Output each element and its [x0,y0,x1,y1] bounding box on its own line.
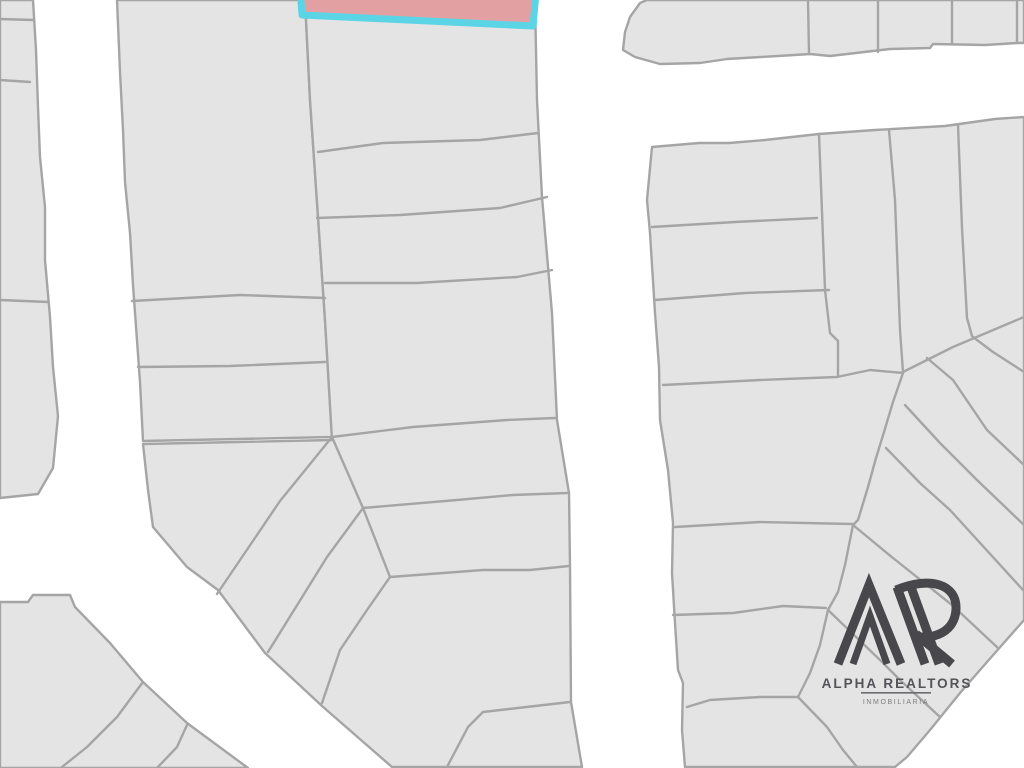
parcel-blocks [0,0,1024,768]
logo-title: ALPHA REALTORS [822,676,973,691]
block-top-right [623,0,1024,64]
block-right-superblock [647,117,1024,767]
map-viewport: ALPHA REALTORS INMOBILIARIA [0,0,1024,768]
lot-line-sliver-1 [0,19,33,20]
logo-divider-line [861,692,931,694]
block-top-middle [117,0,332,441]
lot-line-topright-v1 [808,0,809,54]
parcel-map: ALPHA REALTORS INMOBILIARIA [0,0,1024,768]
block-left-sliver [0,0,58,498]
block-bottom-left [0,595,248,768]
logo-subtitle: INMOBILIARIA [863,699,929,706]
